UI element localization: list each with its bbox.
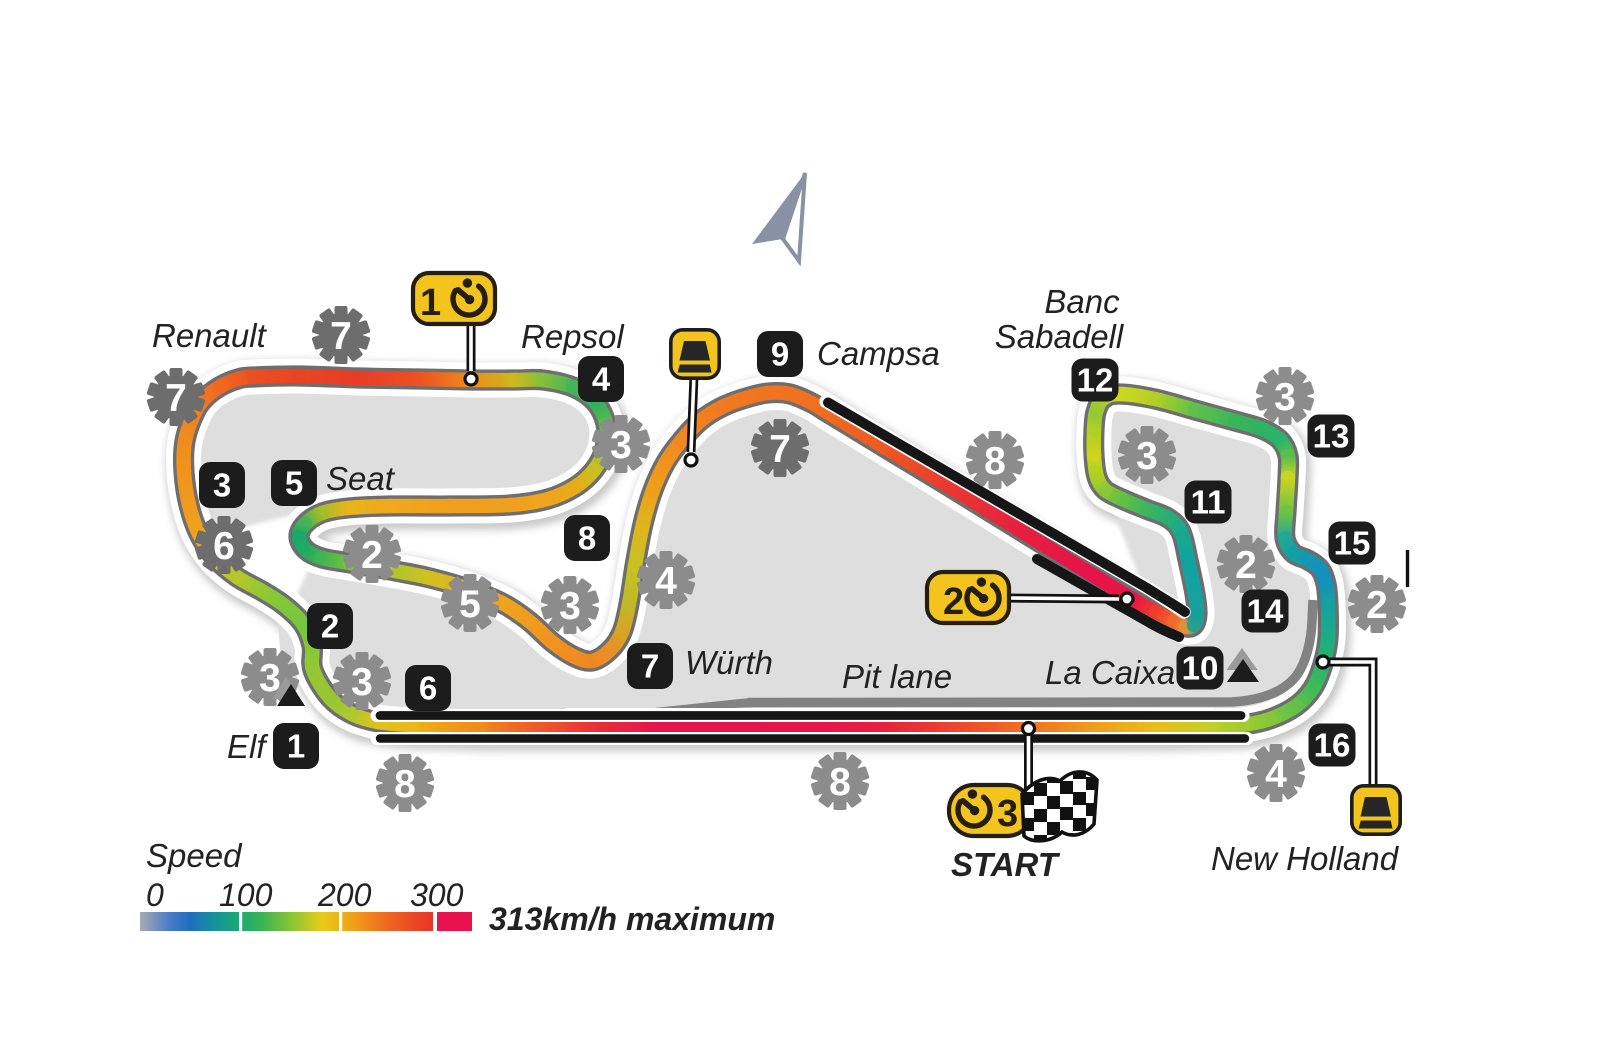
- svg-text:1: 1: [420, 282, 441, 324]
- svg-text:2: 2: [361, 534, 383, 577]
- svg-text:3: 3: [559, 585, 581, 628]
- svg-text:8: 8: [578, 520, 596, 557]
- svg-text:7: 7: [330, 315, 352, 358]
- svg-text:9: 9: [771, 336, 789, 373]
- svg-text:New Holland: New Holland: [1211, 840, 1400, 877]
- svg-text:Pit lane: Pit lane: [842, 658, 952, 695]
- svg-text:2: 2: [1366, 584, 1388, 627]
- svg-text:4: 4: [1265, 753, 1287, 796]
- svg-text:3: 3: [213, 467, 231, 504]
- svg-text:Repsol: Repsol: [521, 318, 625, 355]
- svg-text:Banc: Banc: [1044, 283, 1120, 320]
- svg-text:14: 14: [1247, 593, 1284, 630]
- svg-text:5: 5: [285, 465, 303, 502]
- svg-text:3: 3: [610, 424, 632, 467]
- svg-text:Sabadell: Sabadell: [995, 318, 1125, 355]
- svg-text:6: 6: [213, 525, 235, 568]
- svg-text:6: 6: [419, 670, 437, 707]
- svg-text:5: 5: [459, 583, 481, 626]
- svg-text:100: 100: [219, 877, 273, 913]
- svg-text:Elf: Elf: [227, 728, 269, 765]
- svg-text:8: 8: [394, 763, 416, 806]
- svg-text:2: 2: [1235, 544, 1257, 587]
- svg-text:Campsa: Campsa: [817, 335, 940, 372]
- svg-text:4: 4: [655, 560, 677, 603]
- svg-text:Seat: Seat: [326, 460, 396, 497]
- svg-text:0: 0: [146, 877, 164, 913]
- svg-text:3: 3: [1136, 435, 1158, 478]
- svg-text:3: 3: [997, 793, 1018, 835]
- svg-text:15: 15: [1334, 525, 1371, 562]
- svg-text:13: 13: [1313, 418, 1350, 455]
- svg-text:2: 2: [321, 608, 339, 645]
- svg-text:16: 16: [1314, 727, 1351, 764]
- svg-text:8: 8: [984, 440, 1006, 483]
- svg-text:2: 2: [943, 581, 964, 623]
- svg-text:3: 3: [1274, 376, 1296, 419]
- svg-text:1: 1: [287, 728, 305, 765]
- svg-text:Speed: Speed: [146, 837, 243, 874]
- svg-text:11: 11: [1191, 484, 1226, 521]
- svg-text:7: 7: [641, 648, 659, 685]
- svg-text:8: 8: [829, 761, 851, 804]
- svg-text:START: START: [951, 846, 1061, 883]
- svg-text:7: 7: [165, 377, 187, 420]
- svg-text:Würth: Würth: [685, 644, 773, 681]
- svg-text:12: 12: [1077, 362, 1114, 399]
- svg-text:313km/h maximum: 313km/h maximum: [489, 901, 775, 937]
- svg-text:7: 7: [769, 428, 791, 471]
- svg-text:4: 4: [592, 361, 611, 398]
- svg-text:300: 300: [410, 877, 464, 913]
- svg-text:3: 3: [351, 661, 373, 704]
- svg-text:10: 10: [1182, 650, 1219, 687]
- svg-text:La Caixa: La Caixa: [1045, 654, 1175, 691]
- svg-text:Renault: Renault: [152, 317, 268, 354]
- svg-text:200: 200: [317, 877, 372, 913]
